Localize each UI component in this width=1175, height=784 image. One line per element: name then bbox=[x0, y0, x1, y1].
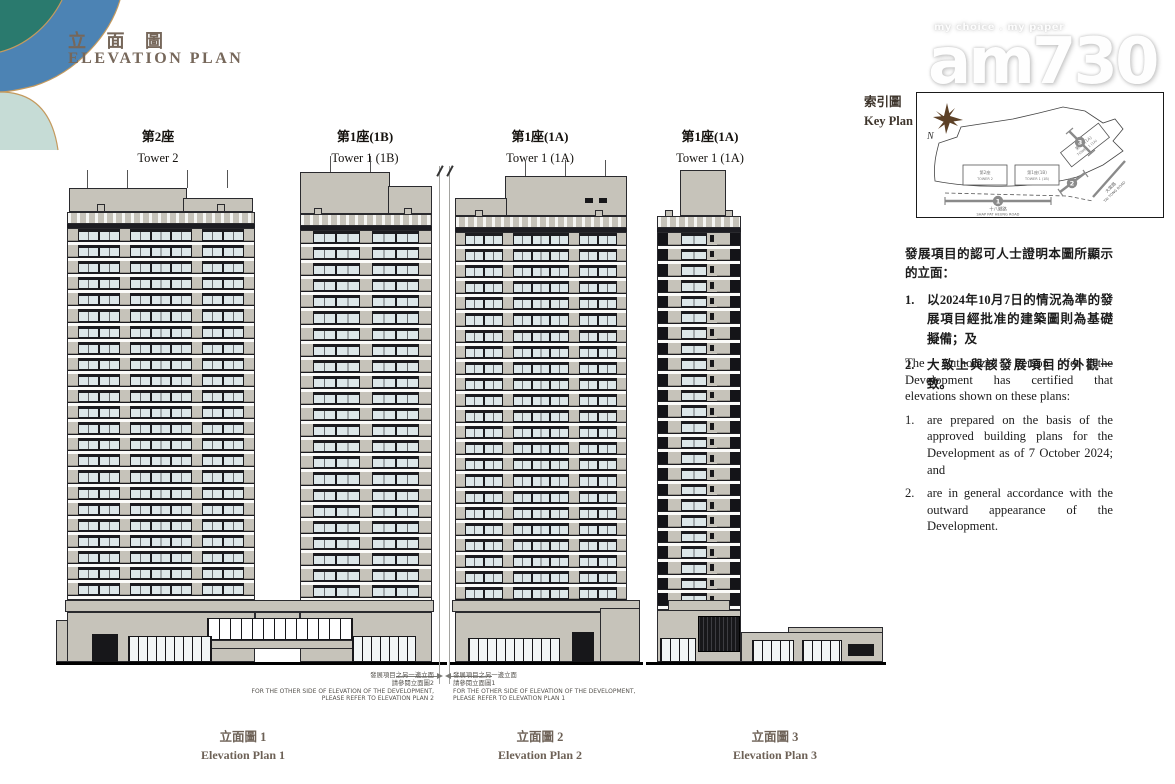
tower-roof-structure bbox=[680, 170, 726, 216]
brochure-page: 立 面 圖 ELEVATION PLAN my choice . my pape… bbox=[0, 0, 1175, 784]
tower-roof-structure bbox=[505, 176, 627, 216]
cross-reference-note-2: 發展項目之另一邊立面 請參閱立面圖1 FOR THE OTHER SIDE OF… bbox=[453, 671, 653, 703]
cross-reference-note-1: 發展項目之另一邊立面 請參閱立面圖2 FOR THE OTHER SIDE OF… bbox=[250, 671, 434, 703]
tower-facade-3 bbox=[455, 232, 627, 604]
elevation-figure bbox=[0, 0, 1175, 784]
plan-label-2: 立面圖 2 Elevation Plan 2 bbox=[440, 726, 640, 763]
tower-facade-1 bbox=[67, 228, 255, 600]
tower-facade-4 bbox=[657, 232, 741, 610]
tower-facade-2 bbox=[300, 230, 432, 602]
plan-label-1: 立面圖 1 Elevation Plan 1 bbox=[143, 726, 343, 763]
plan-label-3: 立面圖 3 Elevation Plan 3 bbox=[675, 726, 875, 763]
tower-roof-structure bbox=[69, 188, 187, 212]
